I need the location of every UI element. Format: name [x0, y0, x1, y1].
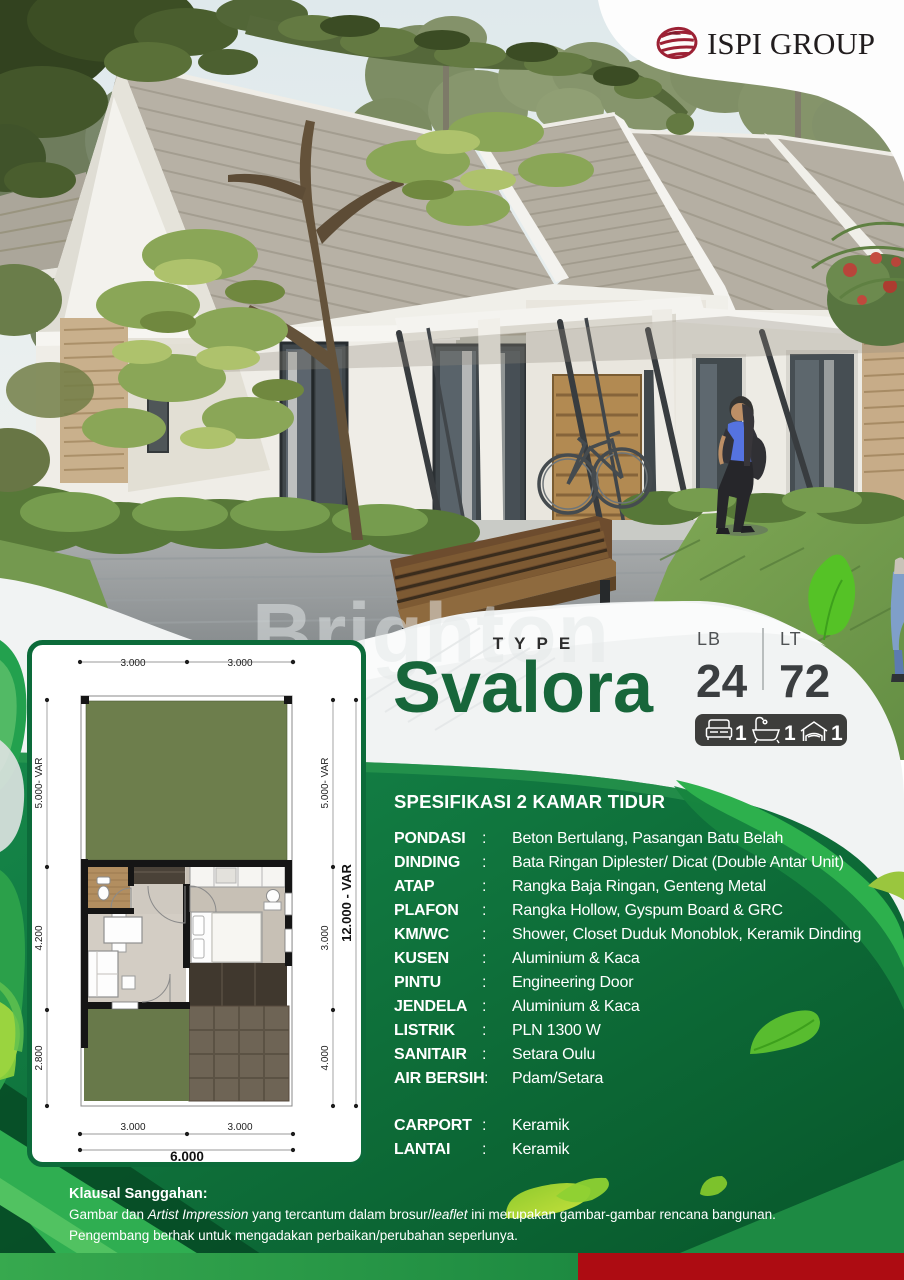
svg-text:2.800: 2.800: [34, 1045, 45, 1070]
svg-text:6.000: 6.000: [170, 1149, 204, 1164]
svg-text:5.000- VAR: 5.000- VAR: [320, 758, 331, 809]
svg-text:1: 1: [735, 722, 747, 745]
svg-text:1: 1: [831, 722, 843, 745]
svg-text:3.000: 3.000: [320, 925, 331, 950]
svg-text:LB: LB: [697, 629, 721, 649]
svg-text:LT: LT: [780, 629, 802, 649]
svg-text:4.200: 4.200: [34, 925, 45, 950]
svg-text:3.000: 3.000: [120, 658, 145, 669]
svg-text:4.000: 4.000: [320, 1045, 331, 1070]
svg-text:3.000: 3.000: [227, 658, 252, 669]
svg-text:12.000 - VAR: 12.000 - VAR: [339, 863, 354, 941]
svg-text:72: 72: [779, 655, 830, 707]
svg-text:1: 1: [784, 722, 796, 745]
svg-text:3.000: 3.000: [227, 1122, 252, 1133]
svg-text:5.000- VAR: 5.000- VAR: [34, 758, 45, 809]
svg-text:ISPI GROUP: ISPI GROUP: [707, 26, 875, 61]
svg-text:Svalora: Svalora: [393, 648, 654, 728]
svg-text:24: 24: [696, 655, 748, 707]
svg-text:3.000: 3.000: [120, 1122, 145, 1133]
